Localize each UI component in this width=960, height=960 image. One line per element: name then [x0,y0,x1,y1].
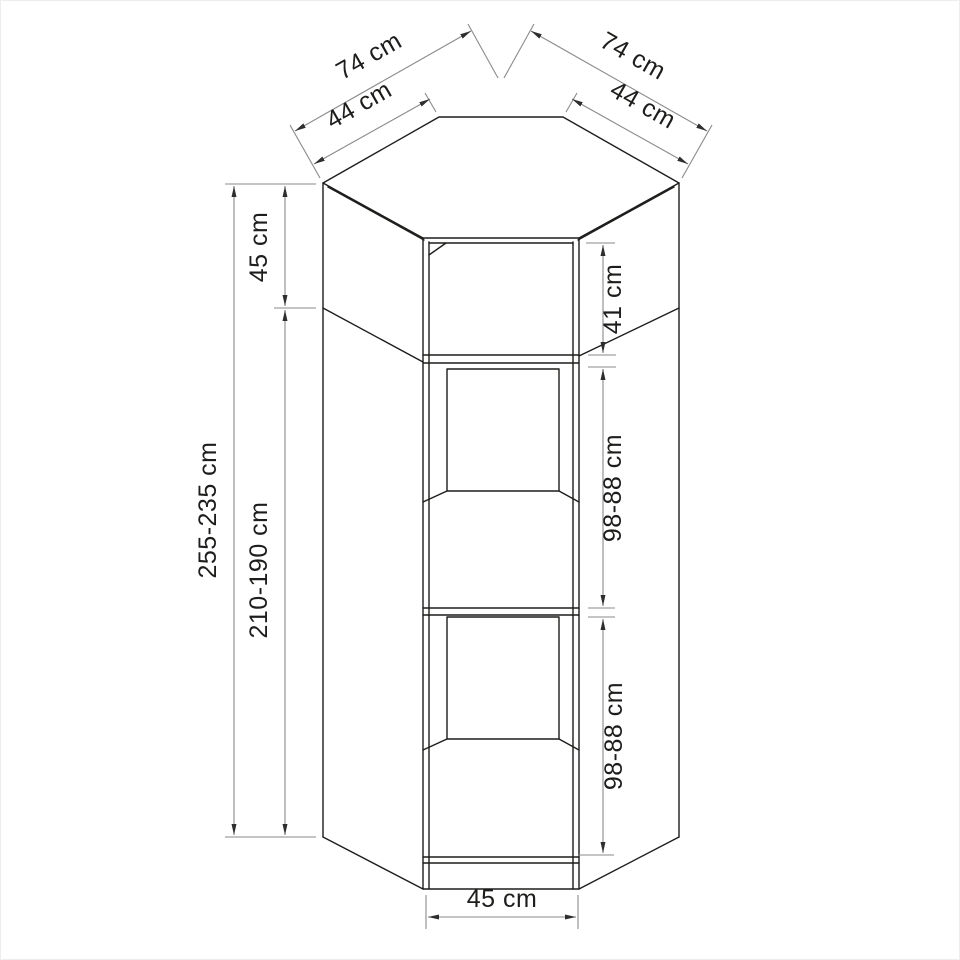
cabinet-left-side-panel [323,183,423,889]
label-wall-right: 74 cm [595,26,670,85]
room-corner-extension-right [504,24,534,78]
diagram-page: 74 cm 74 cm 44 cm 44 cm 45 cm 255-235 cm… [0,0,960,960]
label-wall-left: 74 cm [331,26,406,85]
right-side-bottom-edge [579,837,679,889]
label-side-left: 44 cm [321,75,396,134]
label-top-section-left: 45 cm [245,212,273,283]
left-side-divider-edge [323,308,423,362]
top-panel-thickness-right [578,187,674,240]
extension-back-right [566,93,577,112]
label-upper-compartment: 98-88 cm [599,434,627,542]
middle-back-corner-left [423,491,447,502]
cabinet-front-frame [423,238,579,889]
label-lower-compartment: 98-88 cm [600,682,628,790]
label-top-section-right: 41 cm [599,264,627,335]
extension-left-corner [290,125,320,178]
room-corner-extension-left [468,24,498,78]
label-total-height: 255-235 cm [194,441,222,578]
top-panel-thickness-left [328,187,424,240]
dimension-labels: 74 cm 74 cm 44 cm 44 cm 45 cm 255-235 cm… [194,26,681,913]
middle-compartment [423,369,579,615]
lower-back-panel [447,617,559,739]
cabinet-right-side-panel [579,183,679,889]
label-side-right: 44 cm [605,75,680,134]
middle-back-corner-right [559,491,579,502]
top-compartment-corner-edge [429,243,446,255]
lower-compartment [423,617,579,863]
extension-back-left [425,93,436,112]
cabinet-top-face [323,117,679,240]
top-compartment [423,243,579,363]
lower-back-corner-right [559,739,579,750]
middle-back-panel [447,369,559,491]
right-side-divider-edge [579,308,679,356]
label-front-width: 45 cm [467,885,538,913]
corner-wardrobe-diagram: 74 cm 74 cm 44 cm 44 cm 45 cm 255-235 cm… [1,1,960,960]
extension-right-corner [682,125,712,178]
left-side-bottom-edge [323,837,423,889]
label-interior-height: 210-190 cm [245,501,273,638]
lower-back-corner-left [423,739,447,750]
top-face-outline [323,117,679,238]
